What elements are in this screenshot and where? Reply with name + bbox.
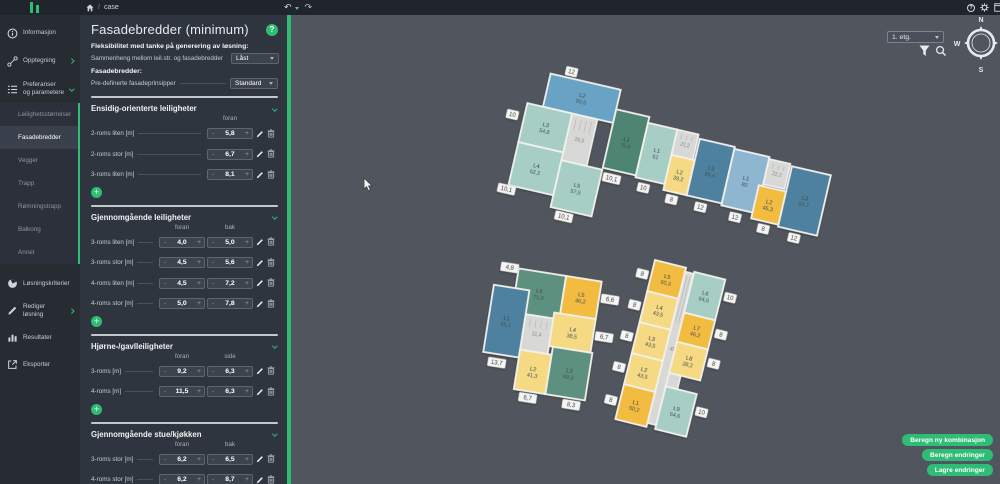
row-label: 3-roms liten [m] [91, 239, 134, 246]
section-title: Gjennomgående leiligheter [91, 213, 273, 222]
topbar: / case ↶ ↷ ? [0, 0, 1000, 15]
params-icon [7, 84, 18, 95]
help-icon[interactable]: ? [967, 4, 975, 12]
page-title: Fasadebredder (minimum) [91, 22, 266, 37]
sidebar-item-opptegning[interactable]: Opptegning [0, 47, 80, 75]
facade-width-row: 4-roms stor [m]-6,2+-8,7+ [91, 471, 278, 484]
predef-row-label: Pre-definerte fasadeprinsipper [91, 80, 176, 87]
facade-width-row: 3-roms [m]-9,2+-6,3+ [91, 362, 278, 380]
width-stepper: -6,3+ [207, 366, 253, 377]
increment-button[interactable]: + [194, 239, 204, 246]
dimension-tag: 8 [612, 361, 626, 373]
stepper-value: 7,8 [218, 300, 242, 307]
stepper-value: 6,3 [218, 388, 242, 395]
dimension-tag: 8 [665, 194, 679, 205]
window-icon[interactable] [994, 3, 1000, 12]
decrement-button[interactable]: - [160, 456, 170, 463]
section-ensidig-orienterte-leiligheter: Ensidig-orienterte leiligheterforan2-rom… [91, 96, 278, 198]
sidebar-item-label: Resultater [23, 334, 75, 342]
breadcrumb: / case [86, 0, 119, 15]
facade-width-row: 4-roms stor [m]-5,0+-7,8+ [91, 295, 278, 313]
breadcrumb-item-case[interactable]: case [104, 4, 119, 11]
width-stepper: -6,3+ [207, 386, 253, 397]
width-stepper: -8,1+ [207, 169, 253, 180]
lagre-endringer-button[interactable]: Lagre endringer [927, 464, 993, 476]
add-row-button[interactable]: + [91, 404, 102, 415]
increment-button[interactable]: + [242, 280, 252, 287]
increment-button[interactable]: + [194, 368, 204, 375]
width-stepper: -6,2+ [159, 474, 205, 484]
dimension-tag: 4,8 [500, 262, 519, 274]
chevron-right-icon [69, 308, 74, 313]
delete-row-button[interactable] [267, 274, 275, 292]
settings-gear-icon[interactable] [980, 3, 989, 12]
dimension-tag: 8,3 [561, 399, 580, 411]
width-stepper: -7,2+ [207, 278, 253, 289]
decrement-button[interactable]: - [160, 300, 170, 307]
facade-principle-select[interactable]: Standard [230, 78, 278, 89]
edit-row-button[interactable] [256, 145, 264, 163]
decrement-button[interactable]: - [160, 476, 170, 483]
stepper-value: 6,7 [218, 151, 242, 158]
stepper-value: 5,0 [218, 239, 242, 246]
dimension-tag: 6,7 [594, 331, 613, 343]
dimension-tag: 12 [565, 66, 579, 77]
row-label: 2-roms stor [m] [91, 151, 133, 158]
chevron-down-icon [69, 87, 74, 92]
dimension-tag: 8 [707, 358, 721, 370]
increment-button[interactable]: + [194, 476, 204, 483]
decrement-button[interactable]: - [208, 280, 218, 287]
stepper-value: 8,7 [218, 476, 242, 483]
delete-row-button[interactable] [267, 166, 275, 184]
edit-row-button[interactable] [256, 254, 264, 272]
delete-row-button[interactable] [267, 362, 275, 380]
stepper-value: 4,5 [170, 280, 194, 287]
panel-help-icon[interactable]: ? [266, 24, 278, 36]
facade-width-row: 3-roms liten [m]-4,0+-5,0+ [91, 233, 278, 251]
sidebar-item-balkong[interactable]: Balkong [0, 218, 80, 241]
sidebar-submenu: LeilighetsstørrelserFasadebredderVeggerT… [0, 103, 80, 264]
dimension-tag: 12 [694, 201, 708, 212]
section-title: Ensidig-orienterte leiligheter [91, 104, 273, 113]
stepper-value: 5,0 [170, 300, 194, 307]
section-divider [91, 205, 278, 207]
dimension-tag: 10 [506, 109, 520, 120]
column-header: foran [207, 115, 253, 122]
sidebar-item-annet[interactable]: Annet [0, 241, 80, 264]
width-stepper: -5,0+ [207, 237, 253, 248]
facade-width-row: 3-roms stor [m]-4,5+-5,6+ [91, 254, 278, 272]
section-divider [91, 96, 278, 98]
row-label: 3-roms stor [m] [91, 456, 133, 463]
edit-row-button[interactable] [256, 471, 264, 484]
increment-button[interactable]: + [194, 388, 204, 395]
dimension-tag: 6,6 [600, 294, 619, 306]
stepper-value: 5,6 [218, 259, 242, 266]
stepper-value: 4,5 [170, 259, 194, 266]
apartment-unit[interactable]: L546,2 [560, 276, 602, 319]
increment-button[interactable]: + [242, 368, 252, 375]
delete-row-button[interactable] [267, 295, 275, 313]
dimension-tag: 8 [628, 299, 642, 311]
section-title: Hjørne-/gavlleiligheter [91, 342, 273, 351]
sidebar-item-informasjon[interactable]: Informasjon [0, 19, 80, 47]
facade-width-row: 2-roms liten [m]-5,8+ [91, 125, 278, 143]
increment-button[interactable]: + [242, 456, 252, 463]
beregn-endringer-button[interactable]: Beregn endringer [922, 449, 993, 461]
sidebar-item-trapp[interactable]: Trapp [0, 172, 80, 195]
fasadebredder-heading: Fasadebredder: [91, 68, 278, 75]
delete-row-button[interactable] [267, 254, 275, 272]
width-stepper: -4,5+ [159, 278, 205, 289]
increment-button[interactable]: + [242, 259, 252, 266]
home-icon[interactable] [86, 4, 94, 12]
sidebar-item-fasadebredder[interactable]: Fasadebredder [0, 126, 80, 149]
increment-button[interactable]: + [242, 171, 252, 178]
edit-row-button[interactable] [256, 233, 264, 251]
compass: N W S E [948, 15, 1000, 75]
width-stepper: -6,7+ [207, 149, 253, 160]
section-gjennomg-ende-stue-kj-kken: Gjennomgående stue/kjøkkenforanbak3-roms… [91, 422, 278, 484]
row-label: 4-roms stor [m] [91, 300, 133, 307]
mouse-cursor [363, 178, 375, 192]
add-row-button[interactable]: + [91, 316, 102, 327]
row-label: 4-roms stor [m] [91, 476, 133, 483]
column-header: foran [159, 353, 205, 360]
edit-row-button[interactable] [256, 450, 264, 468]
decrement-button[interactable]: - [208, 171, 218, 178]
column-header: bak [207, 224, 253, 231]
floorplan-svg: 28,522,222,2L290,5L354,8L462,2L557,5L175… [291, 15, 1000, 484]
column-header: bak [207, 441, 253, 448]
decrement-button[interactable]: - [208, 456, 218, 463]
decrement-button[interactable]: - [208, 476, 218, 483]
increment-button[interactable]: + [242, 130, 252, 137]
width-stepper: -5,6+ [207, 257, 253, 268]
column-header: foran [159, 224, 205, 231]
dimension-tag: 10 [695, 406, 709, 418]
stepper-value: 9,2 [170, 368, 194, 375]
width-stepper: -9,2+ [159, 366, 205, 377]
sidebar-item-label: Opptegning [23, 57, 65, 65]
decrement-button[interactable]: - [208, 300, 218, 307]
building-top: 28,522,222,2L290,5L354,8L462,2L557,5L175… [486, 55, 842, 277]
svg-text:W: W [954, 41, 961, 48]
chevron-right-icon [69, 59, 74, 64]
stepper-value: 8,1 [218, 171, 242, 178]
row-label: 2-roms liten [m] [91, 130, 134, 137]
chevron-down-icon [270, 57, 274, 60]
building-right: 45,4L550,3L443,5L343,5L243,5L150,2L664,6… [601, 256, 741, 440]
redo-button[interactable]: ↷ [305, 2, 313, 13]
flex-row-label: Sammenheng mellom leil.str. og fasadebre… [91, 55, 223, 62]
app-logo [30, 2, 39, 13]
section-gjennomg-ende-leiligheter: Gjennomgående leiligheterforanbak3-roms … [91, 205, 278, 327]
decrement-button[interactable]: - [160, 239, 170, 246]
edit-row-button[interactable] [256, 166, 264, 184]
sidebar-item-eksporter[interactable]: Eksporter [0, 351, 80, 378]
increment-button[interactable]: + [242, 151, 252, 158]
sidebar-item-label: Rediger løsning [23, 303, 65, 319]
decrement-button[interactable]: - [208, 368, 218, 375]
sidebar-item-r-mningstrapp[interactable]: Rømningstrapp [0, 195, 80, 218]
edit-row-button[interactable] [256, 274, 264, 292]
width-stepper: -6,5+ [207, 454, 253, 465]
decrement-button[interactable]: - [160, 368, 170, 375]
facade-width-row: 3-roms stor [m]-6,2+-6,5+ [91, 450, 278, 468]
settings-panel: Fasadebredder (minimum) ? Fleksibilitet … [80, 15, 287, 484]
increment-button[interactable]: + [194, 300, 204, 307]
increment-button[interactable]: + [194, 456, 204, 463]
sidebar-item-preferanser-og-parametere[interactable]: Preferanser og parametere [0, 75, 80, 103]
chevron-down-icon[interactable] [272, 215, 277, 220]
dimension-tag: 10 [636, 182, 650, 193]
undo-button[interactable]: ↶ [284, 2, 292, 13]
sidebar-item-vegger[interactable]: Vegger [0, 149, 80, 172]
svg-text:N: N [978, 17, 983, 24]
delete-row-button[interactable] [267, 125, 275, 143]
dimension-tag: 8 [620, 330, 634, 342]
chevron-down-icon[interactable] [272, 106, 277, 111]
increment-button[interactable]: + [194, 280, 204, 287]
width-stepper: -11,5+ [159, 386, 205, 397]
stepper-value: 11,5 [170, 388, 194, 395]
plan-canvas[interactable]: 28,522,222,2L290,5L354,8L462,2L557,5L175… [291, 15, 1000, 484]
app-window: / case ↶ ↷ ? Infor [0, 0, 1000, 484]
sidebar-item-l-sningskriterier[interactable]: Løsningskriterier [0, 270, 80, 297]
beregn-ny-kombinasjon-button[interactable]: Beregn ny kombinasjon [902, 434, 993, 446]
row-label: 3-roms stor [m] [91, 259, 133, 266]
decrement-button[interactable]: - [208, 388, 218, 395]
increment-button[interactable]: + [242, 239, 252, 246]
stepper-value: 5,8 [218, 130, 242, 137]
row-label: 3-roms [m] [91, 368, 121, 375]
dimension-tag: 12 [787, 232, 801, 243]
row-label: 3-roms liten [m] [91, 171, 134, 178]
edit-row-button[interactable] [256, 383, 264, 401]
delete-row-button[interactable] [267, 471, 275, 484]
increment-button[interactable]: + [194, 259, 204, 266]
coupling-select[interactable]: Låst [231, 53, 279, 64]
facade-width-row: 4-roms liten [m]-4,5+-7,2+ [91, 274, 278, 292]
filter-icon[interactable] [919, 45, 930, 57]
results-icon [7, 332, 18, 343]
width-stepper: -8,7+ [207, 474, 253, 484]
delete-row-button[interactable] [267, 145, 275, 163]
sidebar-item-label: Preferanser og parametere [23, 81, 65, 97]
stepper-value: 4,0 [170, 239, 194, 246]
delete-row-button[interactable] [267, 233, 275, 251]
export-icon [7, 359, 18, 370]
facade-width-row: 3-roms liten [m]-8,1+ [91, 166, 278, 184]
row-label: 4-roms liten [m] [91, 280, 134, 287]
draw-icon [7, 56, 18, 67]
delete-row-button[interactable] [267, 450, 275, 468]
sidebar-item-rediger-l-sning[interactable]: Rediger løsning [0, 297, 80, 324]
section-hj-rne-gavlleiligheter: Hjørne-/gavlleiligheterforanside3-roms [… [91, 334, 278, 415]
breadcrumb-separator: / [98, 4, 100, 11]
zoom-search-icon[interactable] [935, 45, 947, 57]
decrement-button[interactable]: - [160, 280, 170, 287]
sidebar-item-label: Eksporter [23, 361, 75, 369]
chevron-down-icon [935, 36, 939, 39]
edit-row-button[interactable] [256, 362, 264, 380]
edit-row-button[interactable] [256, 125, 264, 143]
section-title: Gjennomgående stue/kjøkken [91, 430, 273, 439]
floor-select[interactable]: 1. etg. [887, 31, 944, 43]
section-divider [91, 422, 278, 424]
sidebar-item-label: Informasjon [23, 29, 75, 37]
decrement-button[interactable]: - [208, 239, 218, 246]
delete-row-button[interactable] [267, 383, 275, 401]
apartment-unit[interactable]: L369,3 [545, 347, 592, 401]
dimension-tag: 13,7 [487, 357, 506, 369]
stepper-value: 6,5 [218, 456, 242, 463]
building-left: 31,4L671,9L546,2L185,1L438,5L241,3L369,3… [477, 261, 623, 414]
section-divider [91, 334, 278, 336]
sidebar-item-resultater[interactable]: Resultater [0, 324, 80, 351]
dimension-tag: 12 [728, 212, 742, 223]
decrement-button[interactable]: - [208, 259, 218, 266]
dimension-tag: 8 [604, 394, 618, 406]
panel-divider [287, 15, 291, 484]
stepper-value: 7,2 [218, 280, 242, 287]
chevron-down-icon [269, 82, 273, 85]
dimension-tag: 8 [635, 268, 649, 280]
sidebar: InformasjonOpptegningPreferanser og para… [0, 15, 80, 484]
increment-button[interactable]: + [242, 388, 252, 395]
stepper-value: 6,2 [170, 456, 194, 463]
decrement-button[interactable]: - [160, 259, 170, 266]
edit-icon [7, 305, 18, 316]
decrement-button[interactable]: - [208, 151, 218, 158]
width-stepper: -5,0+ [159, 298, 205, 309]
stepper-value: 6,2 [170, 476, 194, 483]
chevron-down-icon[interactable] [272, 344, 277, 349]
edit-row-button[interactable] [256, 295, 264, 313]
criteria-icon [7, 278, 18, 289]
width-stepper: -7,8+ [207, 298, 253, 309]
increment-button[interactable]: + [242, 476, 252, 483]
dimension-tag: 10 [723, 292, 737, 304]
column-header: side [207, 353, 253, 360]
dimension-tag: 10,1 [602, 172, 622, 185]
svg-text:S: S [979, 67, 984, 74]
sidebar-item-label: Løsningskriterier [23, 280, 75, 288]
column-header: foran [159, 441, 205, 448]
width-stepper: -5,8+ [207, 128, 253, 139]
apartment-unit[interactable]: L838,2 [669, 342, 708, 381]
add-row-button[interactable]: + [91, 187, 102, 198]
facade-width-row: 4-roms [m]-11,5+-6,3+ [91, 383, 278, 401]
dimension-tag: 8 [756, 223, 770, 234]
flexibility-heading: Fleksibilitet med tanke på generering av… [91, 43, 278, 50]
width-stepper: -4,5+ [159, 257, 205, 268]
dimension-tag: 8 [714, 329, 728, 341]
sidebar-item-leilighetsst-rrelser[interactable]: Leilighetsstørrelser [0, 103, 80, 126]
info-icon [7, 28, 18, 39]
decrement-button[interactable]: - [208, 130, 218, 137]
stepper-value: 6,3 [218, 368, 242, 375]
increment-button[interactable]: + [242, 300, 252, 307]
facade-width-row: 2-roms stor [m]-6,7+ [91, 145, 278, 163]
undo-menu-caret[interactable] [295, 7, 299, 10]
dimension-tag: 6,7 [518, 392, 537, 404]
chevron-down-icon[interactable] [272, 432, 277, 437]
width-stepper: -6,2+ [159, 454, 205, 465]
decrement-button[interactable]: - [160, 388, 170, 395]
width-stepper: -4,0+ [159, 237, 205, 248]
row-label: 4-roms [m] [91, 388, 121, 395]
